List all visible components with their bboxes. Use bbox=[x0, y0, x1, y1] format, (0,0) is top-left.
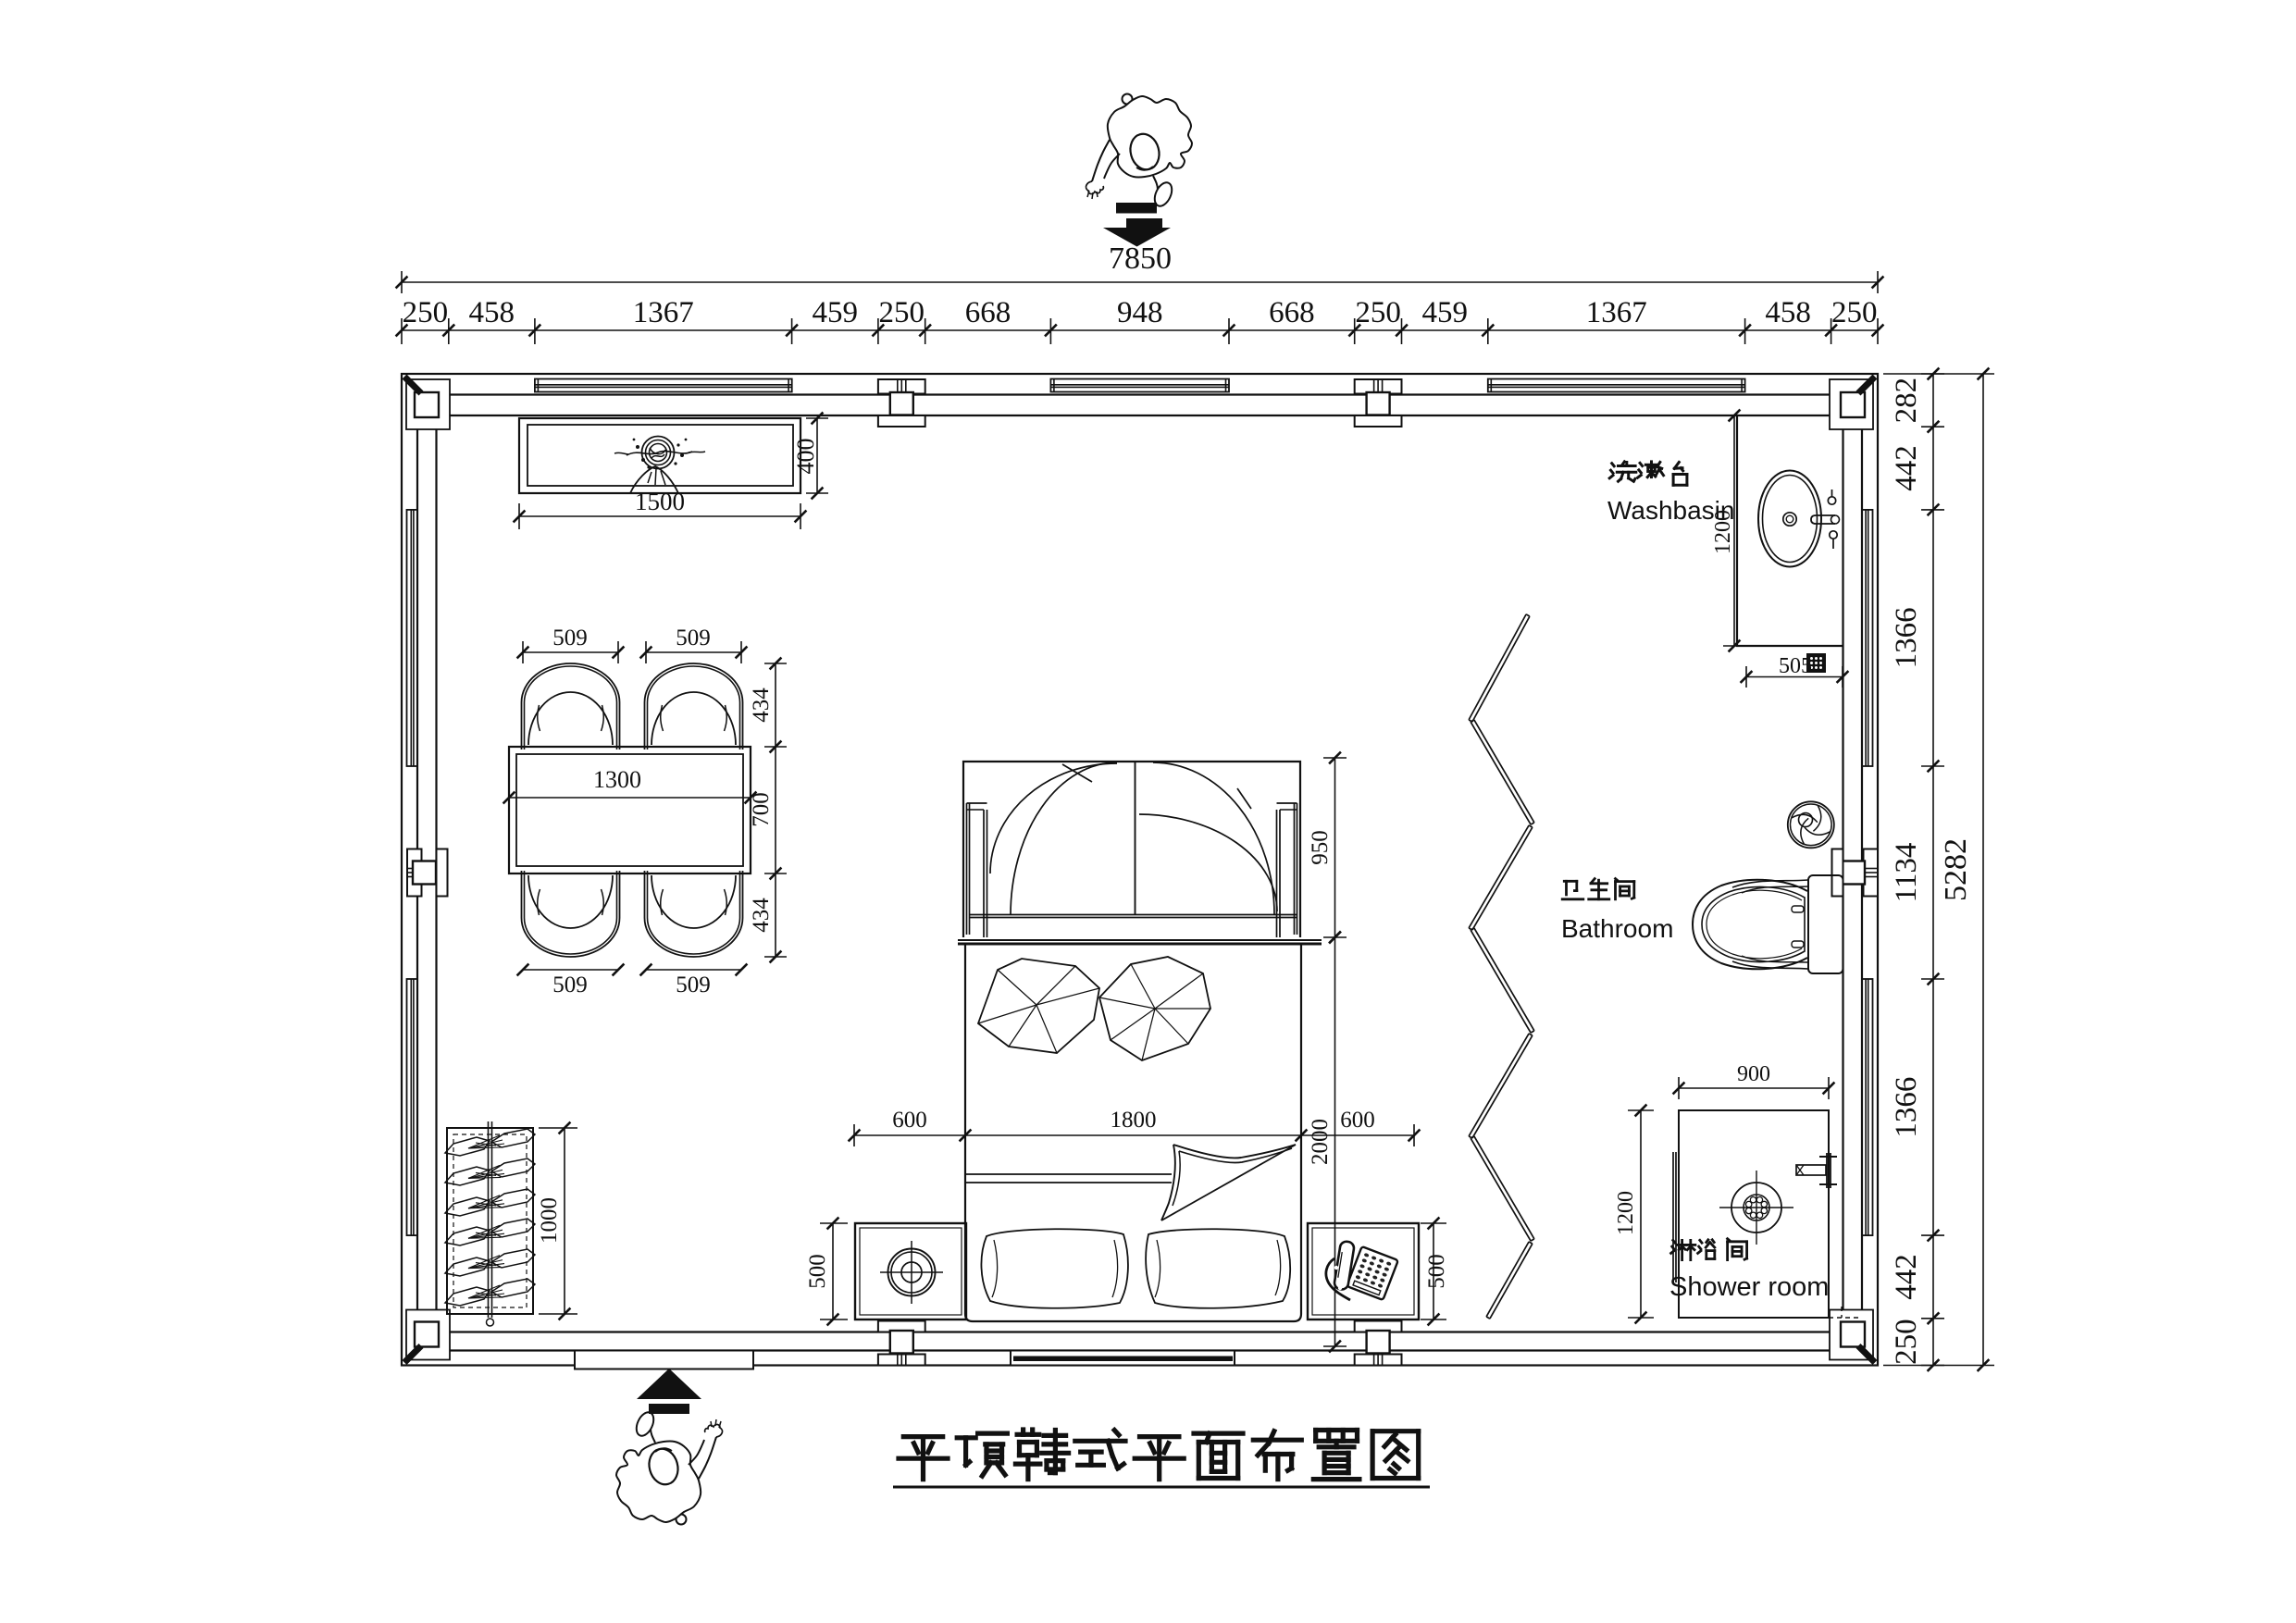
svg-text:1367: 1367 bbox=[633, 296, 694, 329]
svg-text:Washbasin: Washbasin bbox=[1607, 496, 1734, 525]
svg-text:668: 668 bbox=[1269, 296, 1315, 329]
svg-text:442: 442 bbox=[1890, 1254, 1923, 1300]
svg-text:950: 950 bbox=[1308, 830, 1333, 865]
svg-text:1200: 1200 bbox=[1614, 1191, 1638, 1235]
svg-text:2000: 2000 bbox=[1308, 1119, 1333, 1165]
svg-text:509: 509 bbox=[676, 973, 711, 997]
svg-text:442: 442 bbox=[1890, 445, 1923, 491]
svg-text:434: 434 bbox=[749, 688, 774, 723]
svg-text:600: 600 bbox=[892, 1108, 927, 1133]
svg-text:250: 250 bbox=[879, 296, 925, 329]
svg-text:509: 509 bbox=[552, 973, 588, 997]
svg-text:Bathroom: Bathroom bbox=[1561, 914, 1673, 943]
svg-text:458: 458 bbox=[1765, 296, 1811, 329]
svg-text:250: 250 bbox=[1355, 296, 1401, 329]
svg-text:1500: 1500 bbox=[635, 488, 685, 515]
svg-text:250: 250 bbox=[403, 296, 449, 329]
svg-text:1366: 1366 bbox=[1890, 1077, 1923, 1138]
svg-text:7850: 7850 bbox=[1109, 242, 1172, 276]
svg-text:282: 282 bbox=[1890, 378, 1923, 424]
svg-text:509: 509 bbox=[552, 626, 588, 650]
svg-text:500: 500 bbox=[1424, 1254, 1449, 1289]
svg-text:700: 700 bbox=[749, 792, 774, 827]
svg-text:505: 505 bbox=[1779, 654, 1812, 678]
svg-text:509: 509 bbox=[676, 626, 711, 650]
svg-text:1367: 1367 bbox=[1586, 296, 1647, 329]
svg-text:600: 600 bbox=[1340, 1108, 1375, 1133]
svg-text:948: 948 bbox=[1117, 296, 1163, 329]
svg-text:668: 668 bbox=[965, 296, 1011, 329]
svg-text:1366: 1366 bbox=[1890, 607, 1923, 668]
svg-text:400: 400 bbox=[792, 439, 819, 475]
svg-text:459: 459 bbox=[1421, 296, 1468, 329]
svg-text:434: 434 bbox=[749, 898, 774, 933]
svg-text:250: 250 bbox=[1890, 1319, 1923, 1365]
svg-text:1000: 1000 bbox=[537, 1197, 562, 1244]
svg-text:500: 500 bbox=[805, 1254, 830, 1289]
svg-text:1134: 1134 bbox=[1890, 843, 1923, 903]
svg-text:5282: 5282 bbox=[1939, 838, 1973, 901]
svg-text:1300: 1300 bbox=[593, 766, 641, 793]
svg-text:Shower room: Shower room bbox=[1669, 1272, 1829, 1302]
svg-text:1800: 1800 bbox=[1111, 1108, 1157, 1133]
svg-text:250: 250 bbox=[1831, 296, 1878, 329]
svg-text:900: 900 bbox=[1737, 1062, 1770, 1086]
svg-text:458: 458 bbox=[469, 296, 515, 329]
svg-text:459: 459 bbox=[812, 296, 858, 329]
